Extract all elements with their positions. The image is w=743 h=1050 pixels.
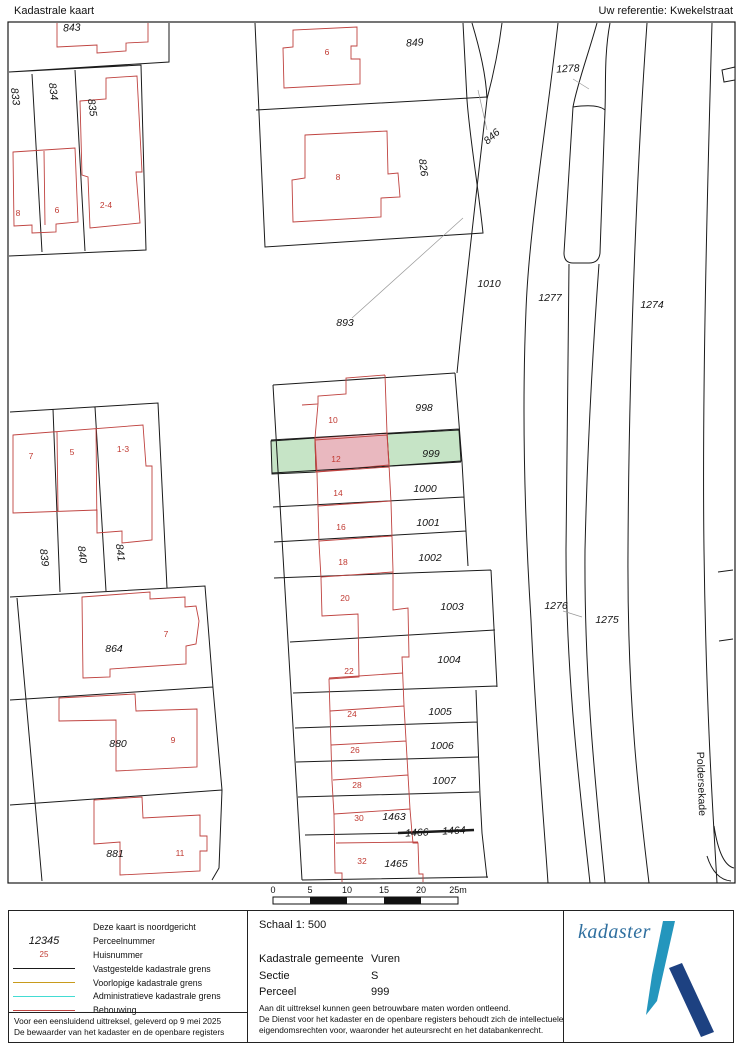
parcel-label-999: 999 [422, 448, 440, 460]
details-notes: Aan dit uittreksel kunnen geen betrouwba… [259, 1003, 563, 1036]
boundary-top-left-block [9, 23, 169, 256]
buildings-top-left [13, 23, 148, 233]
scale-tick-0: 0 [270, 885, 275, 895]
scale-tick-20: 20 [416, 885, 426, 895]
house-number-18: 18 [338, 557, 348, 567]
house-number-7: 7 [29, 451, 34, 461]
legend-rows: Deze kaart is noordgericht12345Perceelnu… [9, 911, 247, 1017]
parcel-label-1463: 1463 [382, 811, 406, 823]
gemeente-value: Vuren [371, 951, 400, 968]
house-number-2-4: 2-4 [100, 200, 113, 210]
perceel-label: Perceel [259, 984, 371, 1001]
parcel-label-839: 839 [37, 548, 51, 567]
legend-box: Deze kaart is noordgericht12345Perceelnu… [9, 911, 248, 1042]
parcel-label-849: 849 [406, 36, 424, 49]
gemeente-row: Kadastrale gemeente Vuren [259, 951, 563, 968]
legend-sample: 25 [9, 950, 79, 959]
parcel-label-1002: 1002 [418, 552, 442, 564]
scale-tick-10: 10 [342, 885, 352, 895]
house-number-26: 26 [350, 745, 360, 755]
details-note-1: Aan dit uittreksel kunnen geen betrouwba… [259, 1003, 563, 1014]
house-number-8: 8 [336, 172, 341, 182]
house-number-22: 22 [344, 666, 354, 676]
scale-bar-seg-2 [384, 897, 421, 904]
scale-bar-seg-1 [310, 897, 347, 904]
scale-tick-25m: 25m [449, 885, 467, 895]
boundary-top-middle-block [255, 23, 487, 247]
edge-wedge [722, 67, 735, 82]
street-label-poldersekade: Poldersekade [694, 752, 708, 817]
sectie-row: Sectie S [259, 968, 563, 985]
legend-house-sample: 25 [40, 950, 49, 959]
house-number-5: 5 [70, 447, 75, 457]
parcel-label-1275: 1275 [595, 614, 619, 626]
house-number-8: 8 [16, 208, 21, 218]
legend-notes: Voor een eensluidend uittreksel, gelever… [9, 1012, 247, 1042]
parcel-label-1007: 1007 [432, 775, 457, 787]
perceel-value: 999 [371, 984, 389, 1001]
parcel-label-833: 833 [8, 87, 22, 106]
house-number-6: 6 [325, 47, 330, 57]
house-number-10: 10 [328, 415, 338, 425]
house-number-20: 20 [340, 593, 350, 603]
details-note-3: eigendomsrechten voor, waaronder het aut… [259, 1025, 563, 1036]
parcel-label-846: 846 [481, 126, 502, 147]
parcel-label-881: 881 [106, 848, 124, 860]
parcel-label-1000: 1000 [413, 483, 437, 495]
parcel-label-1006: 1006 [430, 740, 454, 752]
scale-bar-ticks: 0510152025m [270, 885, 466, 895]
legend-line-sample [13, 1010, 75, 1011]
scale-tick-5: 5 [307, 885, 312, 895]
house-number-32: 32 [357, 856, 367, 866]
house-number-7: 7 [164, 629, 169, 639]
legend-note-1: Voor een eensluidend uittreksel, gelever… [14, 1016, 247, 1027]
parcel-label-880: 880 [109, 738, 127, 750]
scale-bar-frame [273, 897, 458, 904]
legend-sample [9, 1010, 79, 1011]
logo-dark-bar [669, 963, 714, 1037]
house-number-9: 9 [171, 735, 176, 745]
parcel-label-826: 826 [416, 158, 430, 177]
boundary-left-middle-block [10, 403, 222, 881]
house-number-30: 30 [354, 813, 364, 823]
legend-line-sample [13, 996, 75, 997]
legend-row: Administratieve kadastrale grens [9, 990, 247, 1003]
parcel-label-1276: 1276 [544, 600, 568, 612]
legend-sample [9, 968, 79, 969]
legend-label: Deze kaart is noordgericht [93, 922, 196, 932]
parcel-label-1465: 1465 [384, 858, 408, 870]
parcel-label-1466: 1466 [405, 826, 429, 839]
legend-row: 12345Perceelnummer [9, 935, 247, 948]
road-island [564, 106, 605, 263]
legend-label: Administratieve kadastrale grens [93, 991, 221, 1001]
scale-bar: 0510152025m [270, 885, 466, 904]
cadastral-extract-page: { "header": { "title": "Kadastrale kaart… [0, 0, 743, 1050]
legend-label: Huisnummer [93, 950, 143, 960]
kadaster-logo-text: kadaster [578, 921, 651, 944]
house-number-1-3: 1-3 [117, 444, 130, 454]
details-note-2: De Dienst voor het kadaster en de openba… [259, 1014, 563, 1025]
parcel-label-864: 864 [105, 643, 123, 655]
parcel-label-840: 840 [75, 545, 89, 564]
house-number-28: 28 [352, 780, 362, 790]
parcel-label-1005: 1005 [428, 706, 452, 718]
legend-line-sample [13, 982, 75, 983]
legend-line-sample [13, 968, 75, 969]
details-box: Schaal 1: 500 Kadastrale gemeente Vuren … [248, 911, 564, 1042]
parcel-label-893: 893 [336, 317, 354, 329]
parcel-label-1001: 1001 [416, 517, 439, 529]
legend-parcel-sample: 12345 [29, 935, 60, 947]
scale-text: Schaal 1: 500 [259, 919, 563, 931]
parcel-label-1010: 1010 [477, 278, 501, 290]
legend-row: Voorlopige kadastrale grens [9, 976, 247, 989]
parcel-label-1004: 1004 [437, 654, 461, 666]
legend-sample: 12345 [9, 935, 79, 947]
legend-row: 25Huisnummer [9, 949, 247, 962]
parcel-label-1274: 1274 [640, 299, 664, 311]
parcel-label-1278: 1278 [556, 62, 580, 75]
legend-label: Perceelnummer [93, 936, 155, 946]
perceel-row: Perceel 999 [259, 984, 563, 1001]
map-footer: Deze kaart is noordgericht12345Perceelnu… [8, 910, 734, 1043]
legend-label: Voorlopige kadastrale grens [93, 978, 202, 988]
sectie-label: Sectie [259, 968, 371, 985]
parcel-label-1003: 1003 [440, 601, 464, 613]
parcel-label-998: 998 [415, 402, 433, 414]
house-number-14: 14 [333, 488, 343, 498]
parcel-label-1277: 1277 [538, 292, 563, 304]
sectie-value: S [371, 968, 378, 985]
gemeente-label: Kadastrale gemeente [259, 951, 371, 968]
house-number-12: 12 [331, 454, 341, 464]
legend-sample [9, 982, 79, 983]
house-number-11: 11 [176, 848, 185, 858]
parcel-label-835: 835 [85, 98, 99, 117]
house-number-16: 16 [336, 522, 346, 532]
logo-box: kadaster [564, 911, 735, 1042]
buildings-top-middle [283, 27, 400, 222]
parcel-label-1464: 1464 [442, 824, 466, 837]
parcel-label-841: 841 [113, 543, 127, 562]
legend-row: Deze kaart is noordgericht [9, 921, 247, 934]
parcel-label-843: 843 [63, 22, 81, 35]
legend-row: Vastgestelde kadastrale grens [9, 962, 247, 975]
legend-sample [9, 996, 79, 997]
legend-note-2: De bewaarder van het kadaster en de open… [14, 1027, 247, 1038]
cadastral-map: 0510152025m 8438338348358498268468931010… [0, 0, 743, 910]
house-number-6: 6 [55, 205, 60, 215]
parcel-label-834: 834 [46, 82, 60, 101]
house-number-24: 24 [347, 709, 357, 719]
scale-tick-15: 15 [379, 885, 389, 895]
legend-label: Vastgestelde kadastrale grens [93, 964, 211, 974]
